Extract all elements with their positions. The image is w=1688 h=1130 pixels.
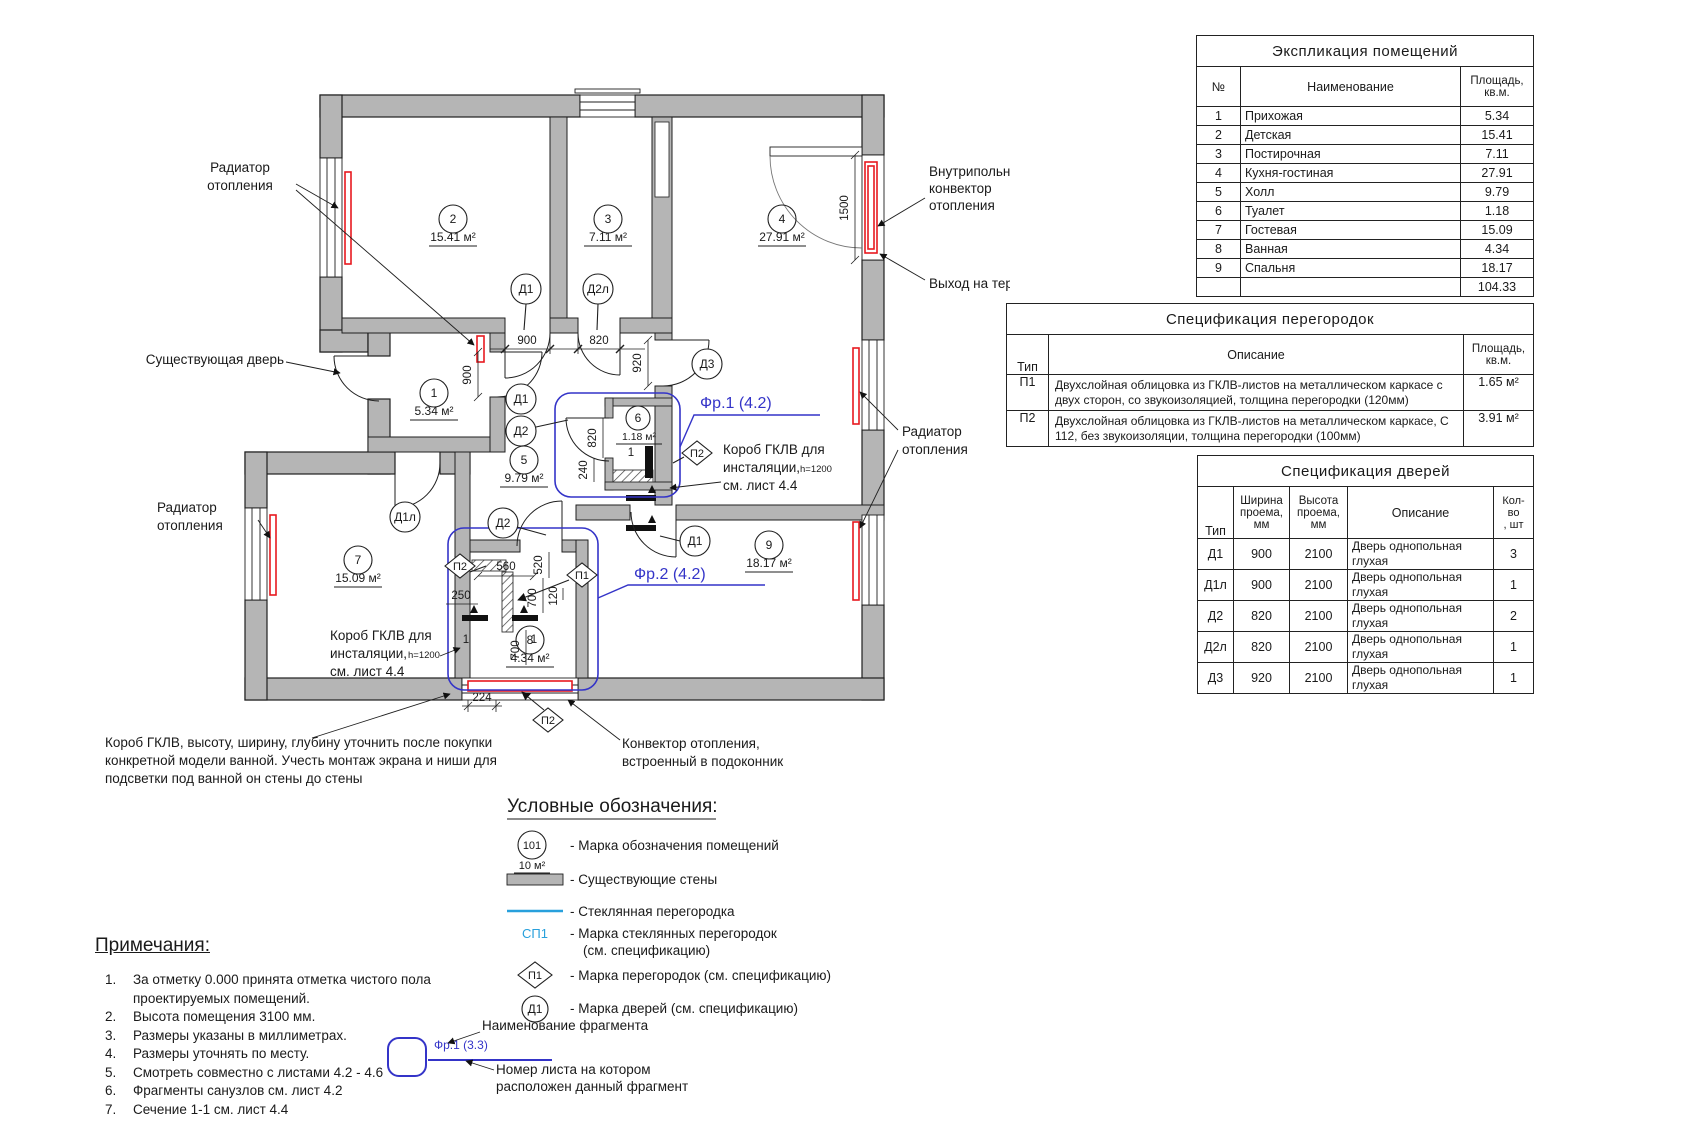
svg-text:отопления: отопления (157, 518, 223, 533)
partition-mark-label: П2 (690, 448, 704, 460)
svg-text:конвектор: конвектор (929, 181, 992, 196)
notes-title: Примечания: (95, 935, 467, 957)
korob-height-note: h=1200 (408, 650, 440, 661)
notes-block: Примечания: За отметку 0.000 принята отм… (95, 935, 467, 1119)
note-item: Сечение 1-1 см. лист 4.4 (95, 1101, 467, 1120)
room-area: 5.34 м² (415, 404, 454, 418)
svg-text:см. лист 4.4: см. лист 4.4 (723, 478, 798, 493)
korob-height-note: h=1200 (800, 464, 832, 475)
doors-table: Спецификация дверей Тип Ширина проема, м… (1197, 455, 1533, 694)
table-row: Д28202100Дверь однопольная глухая2 (1198, 601, 1534, 632)
table-row: 1Прихожая5.34 (1197, 107, 1534, 126)
svg-text:инсталяции,: инсталяции, (723, 460, 800, 475)
table-total-row: 104.33 (1197, 278, 1534, 297)
callout-existing-door: Существующая дверь (146, 352, 284, 367)
terrace-convector-inner (868, 166, 874, 249)
room-number: 9 (766, 538, 773, 552)
svg-text:см. лист 4.4: см. лист 4.4 (330, 664, 405, 679)
room-area: 27.91 м² (759, 230, 805, 244)
col-header: Площадь, кв.м. (1464, 335, 1534, 375)
legend-fragment-callout2: Номер листа на котором (496, 1062, 651, 1077)
radiator-room9 (853, 522, 859, 600)
col-header: № (1197, 67, 1241, 107)
section-label: 1 (628, 447, 634, 459)
door-mark-label: Д1 (514, 392, 529, 406)
legend-d1-text: - Марка дверей (см. спецификацию) (570, 1001, 798, 1016)
col-header: Тип (1007, 335, 1049, 375)
svg-text:Д1: Д1 (528, 1002, 543, 1016)
room-area: 15.41 м² (430, 230, 476, 244)
table-row: Д39202100Дверь однопольная глухая1 (1198, 663, 1534, 694)
room-area: 1.18 м² (622, 431, 657, 443)
room-area: 15.09 м² (335, 571, 381, 585)
door-mark-label: Д1 (688, 534, 703, 548)
legend-title: Условные обозначения: (507, 796, 718, 817)
svg-text:инсталяции,: инсталяции, (330, 646, 407, 661)
door-mark-label: Д2 (496, 516, 511, 530)
legend-sp1-text: - Марка стеклянных перегородок (570, 926, 777, 941)
legend-room-mark-sub: 10 м² (519, 860, 546, 872)
doors-table-title: Спецификация дверей (1198, 456, 1534, 487)
room-number: 6 (635, 411, 642, 425)
partition-mark-label: П2 (541, 715, 555, 727)
callout-korob-left: Короб ГКЛВ для (330, 628, 432, 643)
legend-room-mark-text: - Марка обозначения помещений (570, 838, 779, 853)
note-item: Фрагменты санузлов см. лист 4.2 (95, 1082, 467, 1101)
dim-label: 820 (589, 335, 608, 347)
table-row: 5Холл9.79 (1197, 183, 1534, 202)
svg-text:отопления: отопления (207, 178, 273, 193)
table-row: 2Детская15.41 (1197, 126, 1534, 145)
col-header: Описание (1348, 487, 1494, 539)
partitions-table: Спецификация перегородок Тип Описание Пл… (1006, 303, 1533, 447)
col-header: Высота проема, мм (1290, 487, 1348, 539)
room-number: 5 (521, 453, 528, 467)
radiator-room7 (270, 515, 276, 595)
note-item: Размеры указаны в миллиметрах. (95, 1027, 467, 1046)
dim-label: 900 (462, 365, 474, 384)
drawing-sheet: { "plan": { "labels": { "radiator_top": … (0, 0, 1688, 1125)
col-header: Кол-во , шт (1494, 487, 1534, 539)
table-row: 3Постирочная7.11 (1197, 145, 1534, 164)
radiator-room4 (853, 348, 859, 424)
room-area: 9.79 м² (505, 471, 544, 485)
legend-wall-icon (507, 874, 563, 885)
door-mark-label: Д1 (519, 282, 534, 296)
table-row: Д19002100Дверь однопольная глухая3 (1198, 539, 1534, 570)
legend-p1-text: - Марка перегородок (см. спецификацию) (570, 968, 831, 983)
door-mark-label: Д2 (514, 424, 529, 438)
callout-radiator-left: Радиатор (157, 500, 217, 515)
table-row: П1 Двухслойная облицовка из ГКЛВ-листов … (1007, 375, 1534, 411)
table-row: 7Гостевая15.09 (1197, 221, 1534, 240)
rooms-table-title: Экспликация помещений (1197, 36, 1534, 67)
door-mark-label: Д3 (700, 357, 715, 371)
partition-mark-label: П1 (575, 570, 589, 582)
partition-mark-label: П2 (453, 561, 467, 573)
dim-label: 820 (587, 428, 599, 447)
notes-list: За отметку 0.000 принята отметка чистого… (95, 971, 467, 1119)
total-area: 104.33 (1461, 278, 1534, 297)
dim-label: 224 (472, 692, 492, 704)
room-number: 4 (779, 212, 786, 226)
table-row: 9Спальня18.17 (1197, 259, 1534, 278)
door-mark-label: Д1л (394, 510, 416, 524)
dim-label: 560 (496, 561, 515, 573)
dim-label: 1500 (839, 195, 851, 221)
dim-label: 120 (548, 586, 560, 605)
note-item: За отметку 0.000 принята отметка чистого… (95, 971, 467, 1008)
table-row: Д2л8202100Дверь однопольная глухая1 (1198, 632, 1534, 663)
interior-walls (342, 117, 884, 678)
callout-infloor-convector: Внутрипольный (929, 164, 1010, 179)
dim-label: 900 (517, 335, 536, 347)
legend-fragment-callout1: Наименование фрагмента (482, 1018, 649, 1033)
legend-room-mark-sym: 101 (523, 840, 541, 852)
svg-text:конкретной модели ванной. Учес: конкретной модели ванной. Учесть монтаж … (105, 753, 497, 768)
fragment-2-label: Фр.2 (4.2) (634, 566, 706, 583)
callout-radiator-top: Радиатор (210, 160, 270, 175)
svg-text:П1: П1 (528, 970, 542, 982)
dim-label: 700 (527, 588, 539, 607)
legend-wall-text: - Существующие стены (570, 872, 717, 887)
callout-radiator-right: Радиатор (902, 424, 962, 439)
room-number: 3 (605, 212, 612, 226)
fragment-1-label: Фр.1 (4.2) (700, 395, 772, 412)
bath-note: Короб ГКЛВ, высоту, ширину, глубину уточ… (105, 735, 492, 750)
col-header: Описание (1049, 335, 1464, 375)
table-row: 6Туалет1.18 (1197, 202, 1534, 221)
dim-label: 920 (632, 353, 644, 372)
table-row: 4Кухня-гостиная27.91 (1197, 164, 1534, 183)
svg-text:расположен данный фрагмент: расположен данный фрагмент (496, 1079, 688, 1094)
door-mark-label: Д2л (587, 282, 609, 296)
table-row: П2 Двухслойная облицовка из ГКЛВ-листов … (1007, 411, 1534, 447)
svg-text:подсветки под ванной он стены: подсветки под ванной он стены до стены (105, 771, 363, 786)
rooms-table: Экспликация помещений № Наименование Пло… (1196, 35, 1533, 297)
partitions-table-title: Спецификация перегородок (1007, 304, 1534, 335)
convector-note: Конвектор отопления, (622, 736, 760, 751)
room-area: 7.11 м² (589, 230, 627, 244)
legend-glass-text: - Стеклянная перегородка (570, 904, 735, 919)
section-label: 1 (463, 634, 469, 646)
svg-text:встроенный в подоконник: встроенный в подоконник (622, 754, 783, 769)
room-number: 2 (450, 212, 457, 226)
table-row: 8Ванная4.34 (1197, 240, 1534, 259)
note-item: Высота помещения 3100 мм. (95, 1008, 467, 1027)
fragment-2-leader (598, 585, 765, 598)
dim-label: 250 (451, 590, 470, 602)
legend-sp1-sym: СП1 (522, 926, 548, 941)
radiator-room2 (345, 172, 351, 264)
col-header: Ширина проема, мм (1234, 487, 1290, 539)
svg-text:(см. спецификацию): (см. спецификацию) (583, 943, 710, 958)
room-number: 7 (355, 553, 362, 567)
dim-label: 240 (578, 460, 590, 479)
callout-terrace-exit: Выход на террасу (929, 276, 1010, 291)
room-number: 1 (431, 386, 438, 400)
table-row: Д1л9002100Дверь однопольная глухая1 (1198, 570, 1534, 601)
callout-korob-right: Короб ГКЛВ для (723, 442, 825, 457)
note-item: Размеры уточнять по месту. (95, 1045, 467, 1064)
room-number: 8 (527, 633, 534, 647)
col-header: Наименование (1241, 67, 1461, 107)
svg-text:отопления: отопления (902, 442, 968, 457)
dim-label: 520 (533, 555, 545, 574)
room-area: 4.34 м² (511, 651, 550, 665)
wall-niche (655, 122, 669, 197)
room-area: 18.17 м² (746, 556, 792, 570)
note-item: Смотреть совместно с листами 4.2 - 4.6 (95, 1064, 467, 1083)
col-header: Площадь, кв.м. (1461, 67, 1534, 107)
svg-text:отопления: отопления (929, 198, 995, 213)
col-header: Тип (1198, 487, 1234, 539)
